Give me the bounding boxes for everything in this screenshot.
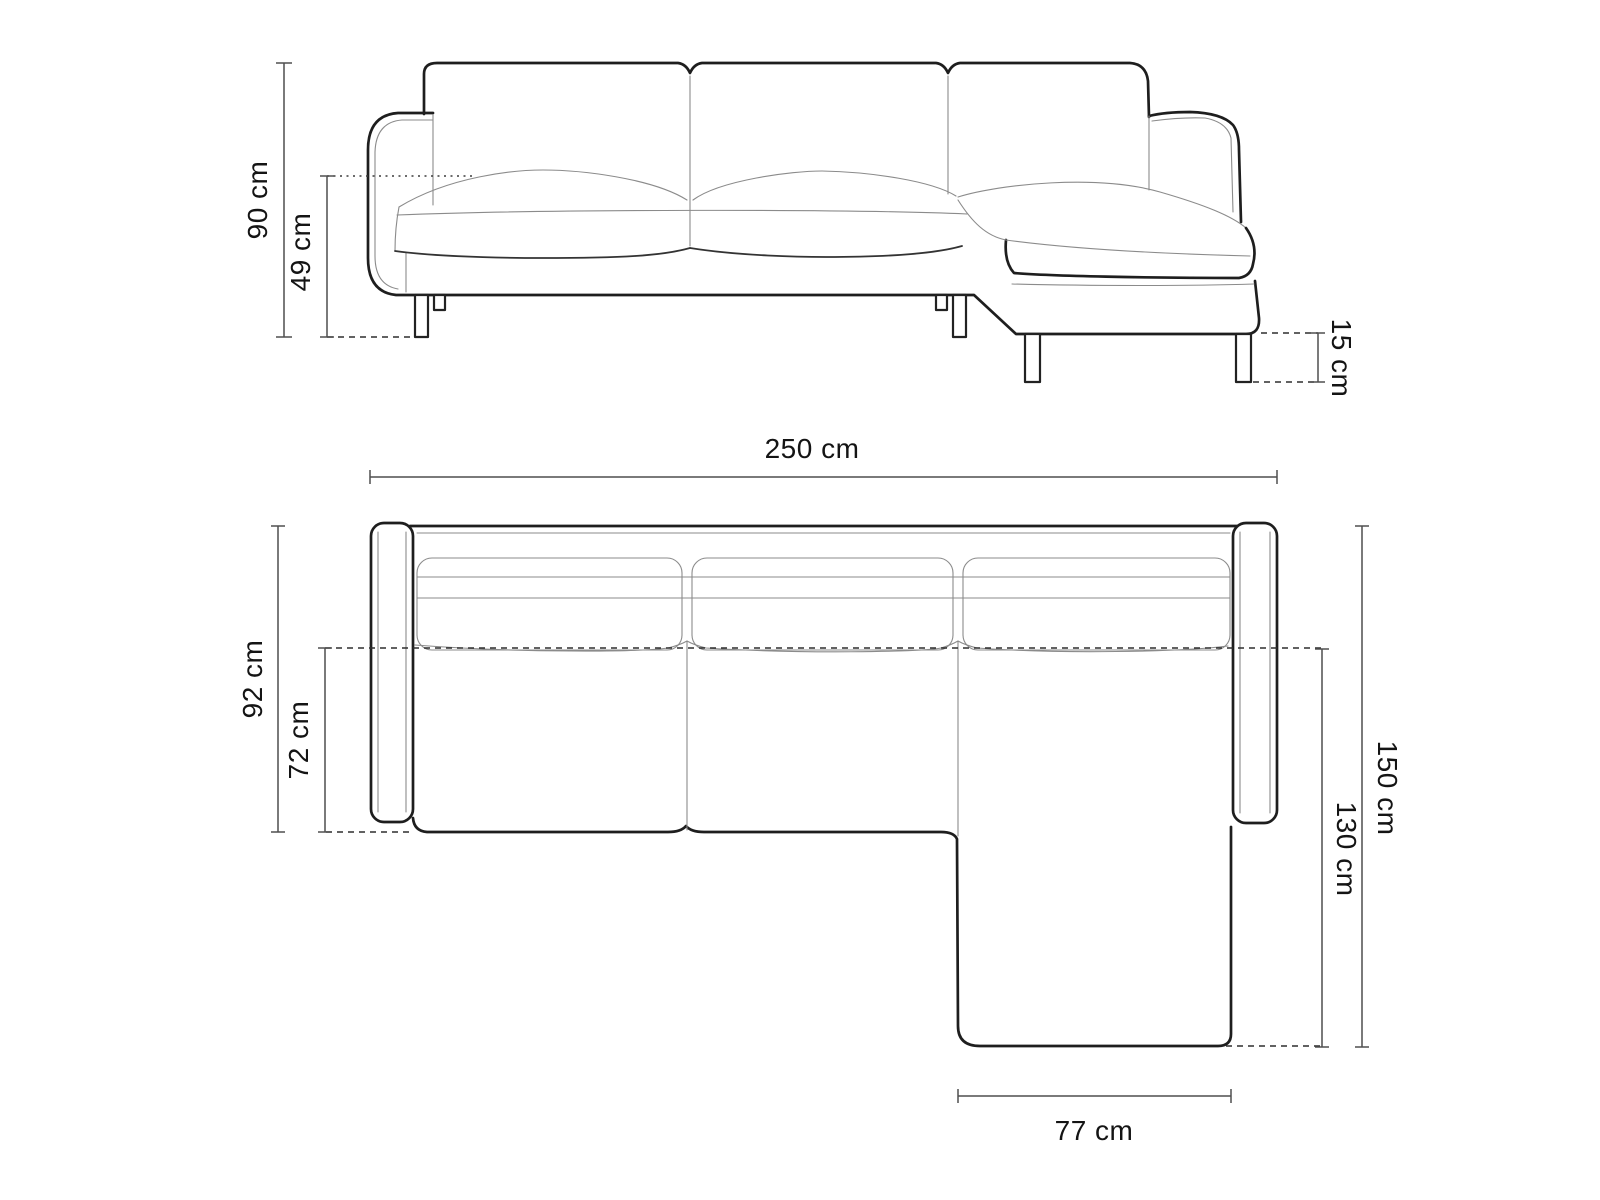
seat-cushion-2-top-arc	[693, 171, 956, 200]
right-arm-seam	[1152, 118, 1233, 212]
chaise-right-leg	[1236, 334, 1251, 382]
chaise-base-seam	[1012, 284, 1254, 286]
left-front-leg	[415, 295, 428, 337]
dim-chaise-length-label: 130 cm	[1331, 802, 1362, 897]
dim-seat-height-label: 49 cm	[285, 213, 316, 292]
dim-total-width: 250 cm	[370, 433, 1277, 484]
dim-chaise-total-length-label: 150 cm	[1372, 741, 1403, 836]
sofa-back-outline	[424, 63, 1149, 117]
dim-total-depth-label: 92 cm	[237, 640, 268, 719]
right-arm-outline	[1149, 112, 1241, 222]
plan-back-cushion-3	[963, 558, 1230, 650]
middle-front-leg	[953, 295, 966, 337]
seat-cushion-2	[690, 171, 962, 257]
middle-back-leg	[936, 295, 947, 310]
plan-back-cushion-2	[692, 558, 953, 650]
chaise-cushion-fold-line	[1006, 240, 1250, 256]
dim-chaise-width-label: 77 cm	[1055, 1115, 1134, 1146]
chaise-cushion-front-edge	[1006, 228, 1255, 278]
seat-cushions-mid-seam	[397, 210, 967, 215]
left-arm-and-base-outline	[368, 113, 1259, 334]
plan-left-arm	[371, 523, 413, 822]
dim-chaise-length: 130 cm	[1315, 649, 1362, 1047]
seat-cushion-1-left-edge	[395, 207, 399, 251]
chaise-cushion-left-transition	[958, 200, 1006, 240]
left-back-leg	[434, 295, 445, 310]
front-elevation-view: 90 cm 49 cm 15 cm	[242, 63, 1357, 397]
dim-total-height: 90 cm	[242, 63, 292, 337]
plan-body-front-and-chaise-outline	[413, 818, 1231, 1046]
chaise-cushion	[958, 182, 1254, 285]
front-view-legs	[415, 295, 1251, 382]
top-plan-view: 250 cm 92 cm 72 cm 150 cm 13	[237, 433, 1403, 1146]
dim-leg-height-label: 15 cm	[1326, 319, 1357, 398]
dim-seat-depth-label: 72 cm	[283, 701, 314, 780]
dim-seat-height: 49 cm	[285, 176, 334, 337]
plan-back-cushion-1	[417, 558, 682, 650]
seat-cushion-1-top-arc	[399, 170, 687, 207]
sofa-dimension-diagram: 90 cm 49 cm 15 cm	[0, 0, 1600, 1200]
dim-total-depth: 92 cm	[237, 526, 285, 832]
dim-total-height-label: 90 cm	[242, 161, 273, 240]
seat-cushion-1-bottom	[395, 248, 690, 258]
dim-chaise-total-length: 150 cm	[1355, 526, 1403, 1047]
chaise-cushion-top-arc	[958, 182, 1246, 228]
dim-leg-height: 15 cm	[1311, 319, 1357, 398]
chaise-left-leg	[1025, 334, 1040, 382]
dim-seat-depth: 72 cm	[283, 648, 332, 832]
diagram-page: 90 cm 49 cm 15 cm	[0, 0, 1600, 1200]
seat-cushion-2-bottom	[690, 246, 962, 257]
dim-total-width-label: 250 cm	[765, 433, 860, 464]
right-arm	[1149, 112, 1241, 222]
dim-chaise-width: 77 cm	[958, 1089, 1231, 1146]
